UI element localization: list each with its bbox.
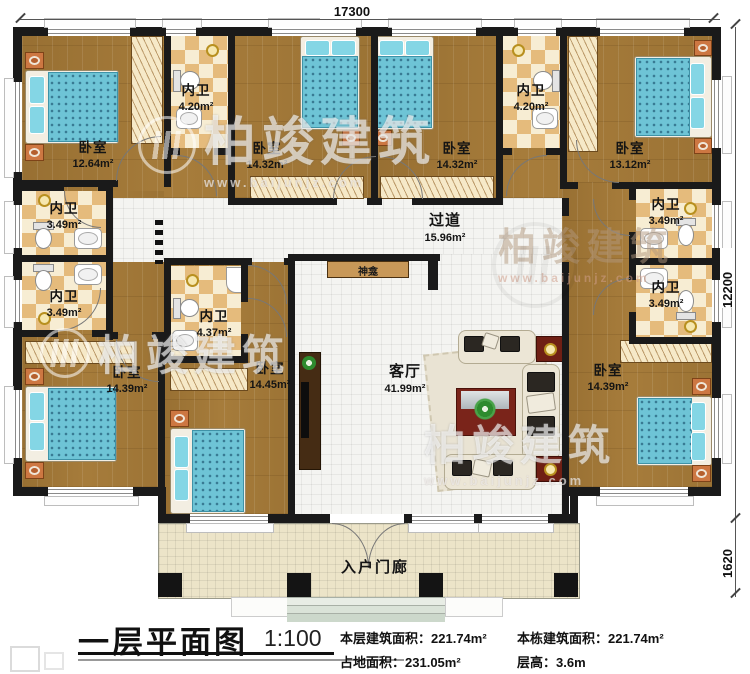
dimension-tick [15, 13, 26, 24]
scale-label: 1:100 [264, 625, 322, 652]
wall [629, 258, 712, 265]
bed-pillow [29, 392, 45, 421]
bed-blanket [192, 430, 244, 512]
wall [164, 148, 180, 155]
plan-title: 一层平面图 [78, 617, 248, 662]
bed-blanket [302, 56, 358, 128]
sofa-cushion [493, 460, 513, 476]
window-sill [408, 523, 480, 533]
window-sill [722, 394, 732, 464]
dimension-height-porch: 1620 [720, 534, 735, 578]
room-label-bath-west2: 内卫 3.49m² [19, 288, 109, 320]
window [13, 390, 22, 458]
sink-icon [74, 264, 102, 285]
window-sill [186, 523, 274, 533]
room-label-bedroom6: 卧室 14.45m² [225, 360, 315, 392]
room-label-bedroom3: 卧室 14.32m² [412, 140, 502, 172]
wall [412, 198, 503, 205]
porch-side-pad [445, 597, 503, 617]
threshold-marks [155, 220, 163, 264]
wall [629, 337, 712, 344]
dimension-line-top [20, 19, 720, 20]
nightstand [170, 410, 189, 427]
watermark-corner [10, 646, 40, 672]
porch-pillar [158, 573, 182, 597]
sink-icon [640, 228, 668, 249]
title-underline [78, 652, 334, 655]
bed-blanket [48, 388, 116, 460]
wall [570, 487, 578, 523]
room-label-bath-east1: 内卫 3.49m² [621, 196, 711, 228]
sofa-cushion [526, 392, 556, 414]
sofa-cushion [500, 336, 520, 352]
nightstand [25, 368, 44, 385]
room-label-corridor: 过道 15.96m² [400, 211, 490, 245]
bed-pillow [690, 97, 705, 129]
bed-pillow [29, 422, 45, 451]
wall [228, 198, 337, 205]
wall [612, 182, 712, 189]
wall [152, 332, 165, 339]
room-label-bedroom7: 卧室 14.39m² [563, 362, 653, 394]
bed-pillow [691, 402, 706, 431]
room-label-bedroom2: 卧室 14.32m² [222, 140, 312, 172]
window-sill [722, 201, 732, 254]
room-label-bedroom5: 卧室 14.39m² [82, 364, 172, 396]
window [190, 514, 268, 523]
window [600, 487, 688, 496]
sofa-cushion [527, 416, 555, 436]
window [48, 487, 133, 496]
nightstand [25, 144, 44, 161]
bed-pillow [305, 40, 330, 56]
room-label-bath-west1: 内卫 3.49m² [19, 200, 109, 232]
shower-icon [206, 44, 219, 57]
bed-pillow [690, 63, 705, 95]
porch-side-pad [231, 597, 289, 617]
window [600, 27, 684, 36]
wall [158, 487, 166, 523]
room-label-bedroom1: 卧室 12.64m² [48, 139, 138, 171]
bed-blanket [376, 56, 432, 128]
porch-pillar [287, 573, 311, 597]
info-floor-height: 层高：3.6m [517, 652, 586, 671]
dimension-height-main: 12200 [720, 248, 735, 308]
porch-pillar [554, 573, 578, 597]
wall [106, 332, 118, 339]
wall [98, 184, 113, 191]
plant-icon [473, 397, 497, 421]
window [518, 27, 556, 36]
nightstand [692, 465, 711, 482]
shrine-shelf: 神龛 [327, 261, 409, 278]
window-sill [44, 496, 139, 506]
nightstand [694, 40, 712, 56]
bed-pillow [174, 469, 189, 501]
wall [22, 330, 58, 337]
toilet-icon [676, 312, 696, 320]
shower-icon [186, 274, 199, 287]
floor-plan: 神龛 [0, 0, 750, 674]
bed-pillow [331, 40, 356, 56]
window-sill [722, 76, 732, 154]
wall [164, 258, 252, 265]
wall [288, 254, 440, 261]
room-label-bath-mid: 内卫 4.37m² [169, 308, 259, 340]
watermark-corner [44, 652, 64, 670]
bed-blanket [636, 58, 690, 136]
window [272, 27, 356, 36]
entry-steps [287, 613, 445, 622]
room-label-living: 客厅 41.99m² [360, 362, 450, 396]
info-land-area: 占地面积：231.05m² [340, 652, 461, 671]
shower-icon [512, 44, 525, 57]
porch-label: 入户门廊 [320, 556, 430, 577]
window [412, 514, 474, 523]
bed-blanket [48, 72, 118, 142]
floor-corridor [113, 198, 562, 262]
dimension-tick [708, 13, 719, 24]
wall [22, 255, 113, 262]
window-sill [478, 523, 554, 533]
wall [629, 232, 636, 280]
nightstand [25, 52, 44, 69]
window [482, 514, 548, 523]
window [48, 27, 130, 36]
window [712, 205, 721, 248]
bed-pillow [691, 432, 706, 461]
sofa-cushion [472, 458, 493, 477]
wall [560, 182, 578, 189]
window [166, 27, 196, 36]
bed-blanket [638, 398, 692, 464]
bed-pillow [405, 40, 430, 56]
info-floor-area: 本层建筑面积：221.74m² [340, 628, 487, 647]
wall [428, 254, 438, 290]
side-table-decor [544, 463, 557, 476]
sofa-cushion [452, 460, 472, 476]
dimension-width: 17300 [320, 4, 384, 19]
dimension-line-right [735, 27, 736, 597]
bed-pillow [29, 76, 45, 104]
window [13, 82, 22, 172]
side-table-decor [544, 343, 557, 356]
shower-icon [684, 320, 697, 333]
room-label-bath-top-right: 内卫 4.20m² [486, 82, 576, 114]
bed-pillow [174, 436, 189, 468]
nightstand [25, 462, 44, 479]
window [392, 27, 476, 36]
nightstand [694, 138, 712, 154]
shrine-label: 神龛 [358, 267, 378, 278]
wall [546, 148, 567, 155]
room-label-bath-east2: 内卫 3.49m² [621, 279, 711, 311]
nightstand [692, 378, 711, 395]
info-building-area: 本栋建筑面积：221.74m² [517, 628, 664, 647]
nightstand [342, 130, 360, 146]
bed-pillow [29, 106, 45, 134]
window [712, 398, 721, 458]
wall [371, 198, 382, 205]
bed-pillow [379, 40, 404, 56]
room-label-bedroom4: 卧室 13.12m² [585, 140, 675, 172]
wall [22, 184, 64, 191]
wall [562, 198, 569, 216]
room-label-bath-top-left: 内卫 4.20m² [151, 82, 241, 114]
window [712, 80, 721, 148]
sofa-cushion [527, 372, 555, 392]
wall [228, 36, 235, 205]
wall [496, 36, 503, 205]
window-sill [596, 496, 694, 506]
